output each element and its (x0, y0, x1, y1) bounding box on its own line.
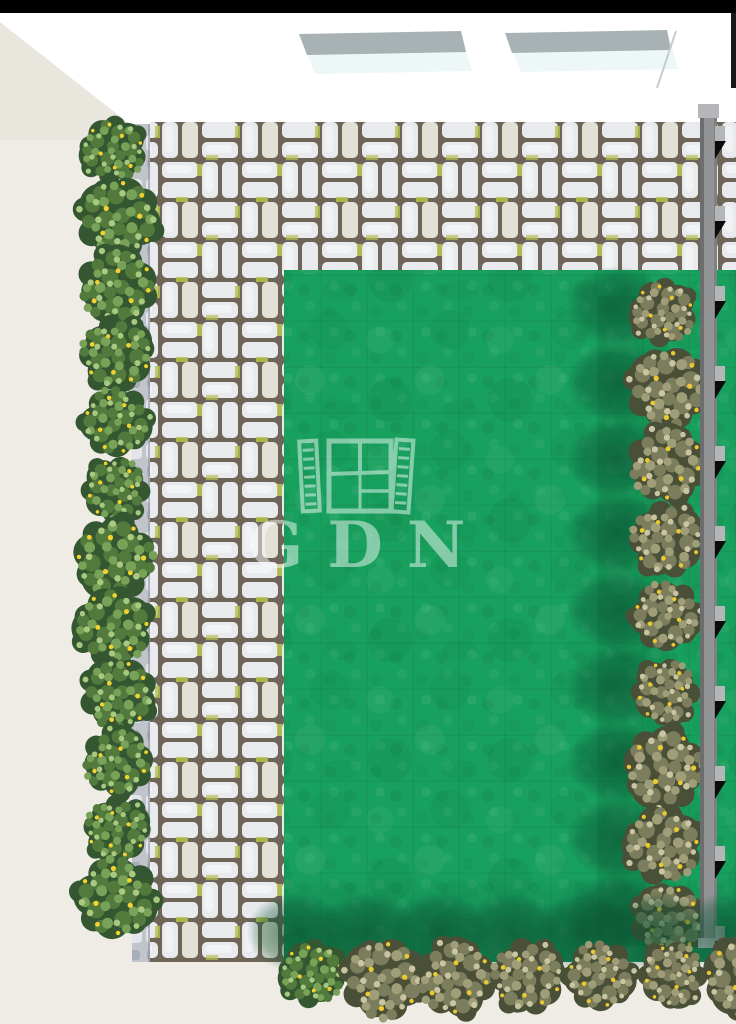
skylight-left (299, 31, 472, 74)
fence-joint-tab (715, 446, 725, 461)
fence-joint-tab (715, 686, 725, 701)
garden-plan-render: GDN (0, 0, 736, 1024)
fence-joint-tab (715, 606, 725, 621)
fence-top-cap (698, 104, 719, 118)
right-edge-strip (731, 13, 736, 88)
skylight-right (505, 30, 678, 72)
fence-joint-tab (715, 206, 725, 221)
fence-joint-tab (715, 846, 725, 861)
top-bar (0, 0, 736, 13)
fence-joint-tab (715, 366, 725, 381)
watermark-text: GDN (249, 508, 490, 583)
fence-joint-tab (715, 126, 725, 141)
fence-joint-tab (715, 286, 725, 301)
fence-joint-tab (715, 526, 725, 541)
fence-joint-tab (715, 766, 725, 781)
scene-canvas: GDN (0, 0, 736, 1024)
